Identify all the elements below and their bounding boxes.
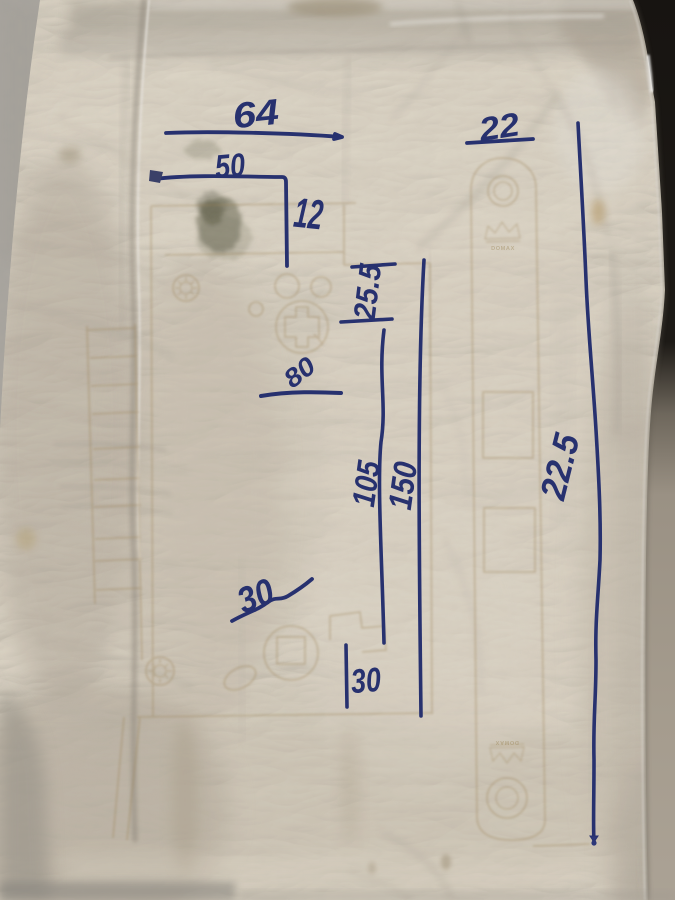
svg-text:50: 50 — [213, 146, 247, 186]
svg-text:12: 12 — [292, 189, 326, 239]
svg-text:150: 150 — [381, 459, 424, 512]
svg-text:DOMAX: DOMAX — [491, 246, 515, 252]
svg-text:30: 30 — [349, 661, 382, 701]
svg-text:25.5: 25.5 — [347, 261, 389, 322]
svg-text:22: 22 — [475, 105, 522, 148]
svg-text:64: 64 — [231, 91, 281, 137]
svg-text:DOMAX: DOMAX — [495, 739, 519, 745]
